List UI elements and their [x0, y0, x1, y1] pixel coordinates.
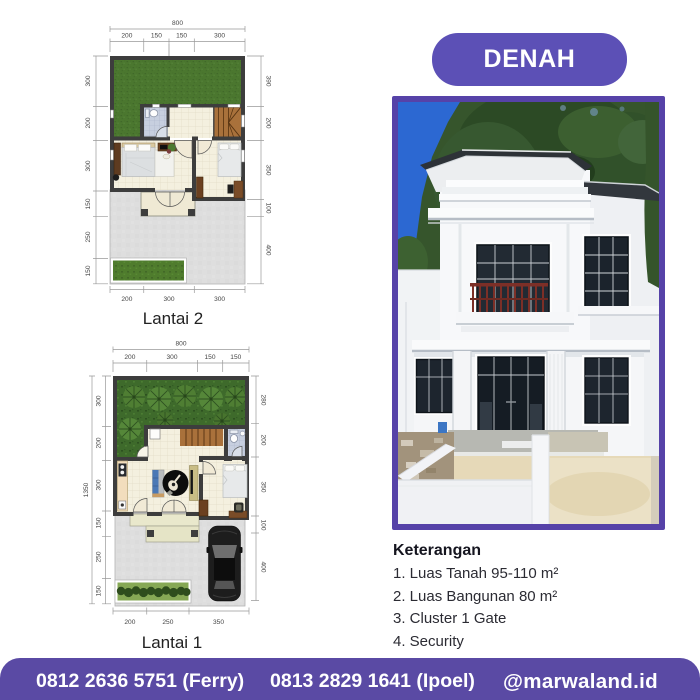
svg-text:800: 800	[172, 20, 183, 27]
svg-text:200: 200	[121, 33, 132, 40]
svg-text:350: 350	[260, 481, 267, 492]
svg-text:390: 390	[265, 75, 272, 86]
svg-text:150: 150	[85, 198, 92, 209]
svg-text:300: 300	[214, 296, 225, 303]
svg-text:200: 200	[124, 354, 135, 361]
svg-text:300: 300	[96, 395, 103, 406]
svg-text:200: 200	[260, 434, 267, 445]
svg-text:200: 200	[96, 437, 103, 448]
svg-text:200: 200	[124, 619, 135, 626]
svg-text:1350: 1350	[83, 482, 90, 497]
svg-text:800: 800	[175, 341, 186, 348]
svg-text:150: 150	[204, 354, 215, 361]
svg-text:300: 300	[166, 354, 177, 361]
svg-text:150: 150	[151, 33, 162, 40]
svg-text:200: 200	[85, 117, 92, 128]
svg-text:300: 300	[85, 75, 92, 86]
svg-text:300: 300	[96, 479, 103, 490]
svg-text:150: 150	[85, 265, 92, 276]
svg-text:400: 400	[265, 244, 272, 255]
svg-text:350: 350	[213, 619, 224, 626]
svg-text:200: 200	[265, 117, 272, 128]
svg-text:200: 200	[121, 296, 132, 303]
svg-text:150: 150	[176, 33, 187, 40]
svg-text:400: 400	[260, 561, 267, 572]
svg-text:100: 100	[265, 202, 272, 213]
svg-text:250: 250	[85, 231, 92, 242]
svg-text:350: 350	[265, 164, 272, 175]
svg-text:150: 150	[96, 585, 103, 596]
svg-text:300: 300	[163, 296, 174, 303]
svg-text:280: 280	[260, 394, 267, 405]
svg-text:300: 300	[85, 160, 92, 171]
svg-text:300: 300	[214, 33, 225, 40]
svg-text:250: 250	[162, 619, 173, 626]
svg-text:250: 250	[96, 551, 103, 562]
svg-text:100: 100	[260, 519, 267, 530]
svg-text:150: 150	[230, 354, 241, 361]
svg-text:150: 150	[96, 517, 103, 528]
